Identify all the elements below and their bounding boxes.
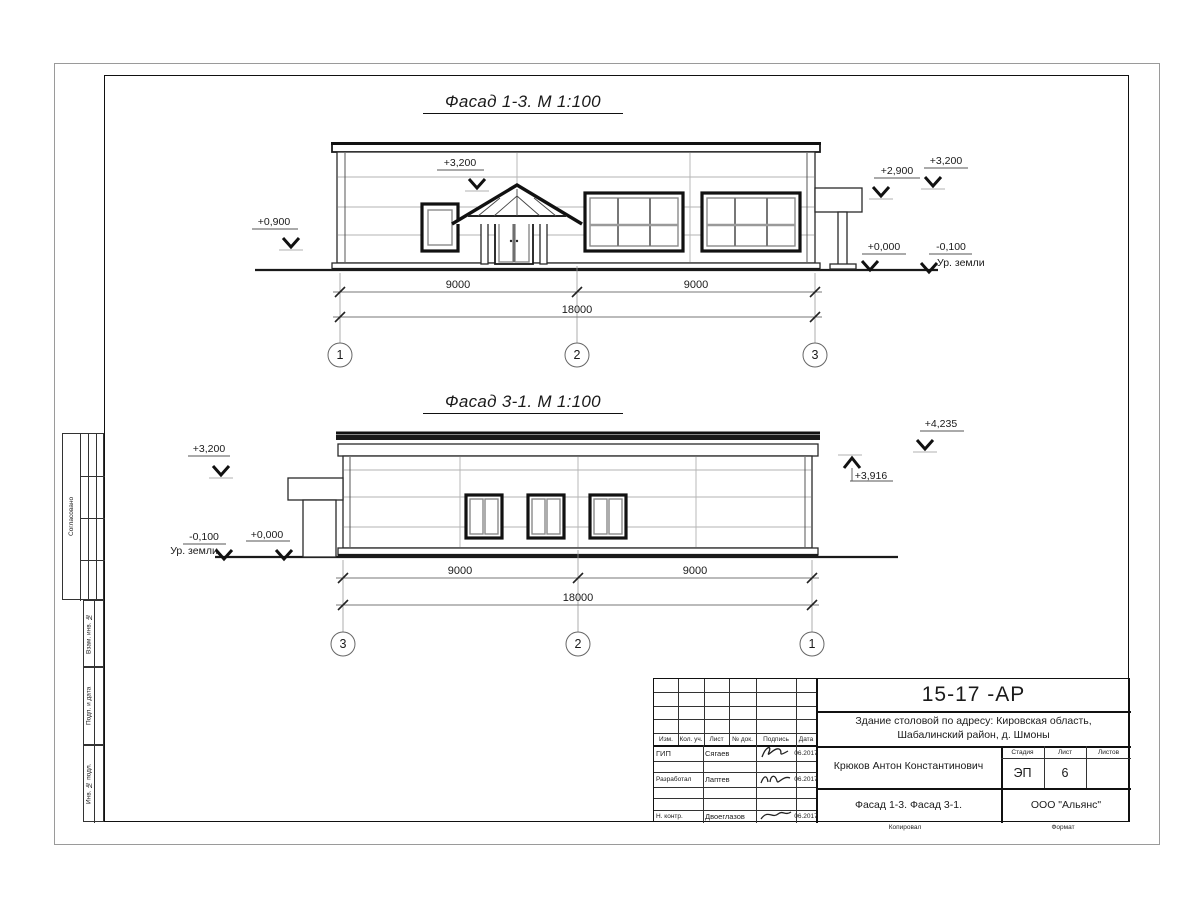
large-window-1 xyxy=(585,193,683,251)
stage-value: ЭП xyxy=(1001,758,1044,788)
row-role: Разработал xyxy=(654,772,703,787)
signature xyxy=(758,769,796,789)
svg-text:Ур. земли: Ур. земли xyxy=(170,545,218,557)
svg-text:9000: 9000 xyxy=(448,565,472,577)
axis-bubbles: 3 2 1 xyxy=(331,632,824,656)
side-canopy xyxy=(288,478,343,557)
vzam-inv-label: Взам. инв. № xyxy=(84,601,94,666)
col-kol: Кол. уч. xyxy=(678,733,704,745)
window-1 xyxy=(466,495,502,538)
elevation-arrow-down-icon xyxy=(873,187,889,196)
row-role: Н. контр. xyxy=(654,810,703,823)
svg-text:18000: 18000 xyxy=(563,592,594,604)
facade-3-1-drawing: +3,200 -0,100 Ур. земли +0,000 +3,91 xyxy=(170,418,964,656)
elevation-mark: +3,200 xyxy=(188,443,233,478)
svg-text:3: 3 xyxy=(340,637,347,651)
svg-text:+3,200: +3,200 xyxy=(193,443,226,455)
col-izm: Изм. xyxy=(654,733,678,745)
ground-level-mark: -0,100 Ур. земли xyxy=(170,531,232,559)
sheet-label: Лист xyxy=(1044,746,1086,758)
sheet-value: 6 xyxy=(1044,758,1086,788)
facade-1-3-drawing: +0,900 +3,200 +2,900 +3,200 xyxy=(252,143,985,367)
side-canopy xyxy=(815,188,862,269)
row-name: Сягаев xyxy=(703,745,756,761)
elevation-arrow-down-icon xyxy=(283,238,299,247)
svg-text:+0,900: +0,900 xyxy=(258,216,291,228)
drawing-title: Фасад 1-3. Фасад 3-1. xyxy=(816,788,1001,823)
large-window-2 xyxy=(702,193,800,251)
col-doc: № док. xyxy=(729,733,756,745)
elevation-mark: +0,000 xyxy=(862,241,906,270)
svg-text:3: 3 xyxy=(812,348,819,362)
row-name: Двоеглазов xyxy=(703,810,756,823)
dimension-lines: 9000 9000 18000 xyxy=(336,550,819,632)
svg-text:1: 1 xyxy=(337,348,344,362)
row-role: ГИП xyxy=(654,745,703,761)
sheets-label: Листов xyxy=(1086,746,1131,758)
row-date: 06.2017 xyxy=(796,745,816,761)
row-name: Лаптев xyxy=(703,772,756,787)
row-date: 06.2017 xyxy=(796,810,816,823)
elevation-arrow-down-icon xyxy=(862,261,878,270)
svg-text:+0,000: +0,000 xyxy=(868,241,901,253)
svg-text:+2,900: +2,900 xyxy=(881,165,914,177)
svg-text:2: 2 xyxy=(575,637,582,651)
svg-text:+4,235: +4,235 xyxy=(925,418,958,430)
elevation-arrow-down-icon xyxy=(213,466,229,475)
signature xyxy=(758,806,796,824)
svg-text:Ур. земли: Ур. земли xyxy=(937,257,985,269)
svg-text:-0,100: -0,100 xyxy=(189,531,219,543)
elevation-mark: +3,916 xyxy=(838,455,893,482)
svg-text:+3,916: +3,916 xyxy=(855,470,888,482)
col-list: Лист xyxy=(704,733,729,745)
inv-podl-stamp: Инв. № подл. xyxy=(83,745,104,822)
svg-text:2: 2 xyxy=(574,348,581,362)
signature xyxy=(758,743,796,763)
svg-text:9000: 9000 xyxy=(446,279,470,291)
svg-text:+3,200: +3,200 xyxy=(930,155,963,167)
author-name: Крюков Антон Константинович xyxy=(816,746,1001,788)
format-label: Формат xyxy=(1023,824,1103,831)
elevation-mark: +0,900 xyxy=(252,216,303,250)
title-block: Изм. Кол. уч. Лист № док. Подпись Дата Г… xyxy=(653,678,1130,822)
elevation-mark: +0,000 xyxy=(246,529,292,559)
copied-label: Копировал xyxy=(865,824,945,831)
dimension-lines: 9000 9000 18000 xyxy=(333,266,822,343)
svg-text:9000: 9000 xyxy=(683,565,707,577)
elevation-arrow-up-icon xyxy=(844,458,860,468)
small-window xyxy=(422,204,458,251)
approval-stamp-label: Согласовано xyxy=(63,434,80,599)
svg-text:1: 1 xyxy=(809,637,816,651)
svg-text:+0,000: +0,000 xyxy=(251,529,284,541)
elevation-mark: +4,235 xyxy=(913,418,964,452)
axis-bubbles: 1 2 3 xyxy=(328,343,827,367)
window-3 xyxy=(590,495,626,538)
company-name: ООО "Альянс" xyxy=(1001,788,1131,823)
elevation-mark: +3,200 xyxy=(921,155,968,189)
elevation-mark: +2,900 xyxy=(869,165,920,199)
ground-level-mark: -0,100 Ур. земли xyxy=(921,241,985,272)
col-date: Дата xyxy=(796,733,816,745)
sheets-value xyxy=(1086,758,1131,788)
doc-number: 15-17 -АР xyxy=(816,679,1131,711)
inv-podl-label: Инв. № подл. xyxy=(84,746,94,821)
project-name: Здание столовой по адресу: Кировская обл… xyxy=(822,711,1125,746)
podp-data-stamp: Подп. и дата xyxy=(83,667,104,745)
row-date: 06.2017 xyxy=(796,772,816,787)
elevation-arrow-down-icon xyxy=(917,440,933,449)
svg-text:+3,200: +3,200 xyxy=(444,157,477,169)
elevation-arrow-down-icon xyxy=(925,177,941,186)
window-2 xyxy=(528,495,564,538)
svg-text:18000: 18000 xyxy=(562,304,593,316)
drawing-sheet: Фасад 1-3. М 1:100 Фасад 3-1. М 1:100 xyxy=(0,0,1200,900)
svg-text:-0,100: -0,100 xyxy=(936,241,966,253)
vzam-inv-stamp: Взам. инв. № xyxy=(83,600,104,667)
svg-text:9000: 9000 xyxy=(684,279,708,291)
approval-stamp: Согласовано xyxy=(62,433,104,600)
stage-label: Стадия xyxy=(1001,746,1044,758)
podp-data-label: Подп. и дата xyxy=(84,668,94,744)
